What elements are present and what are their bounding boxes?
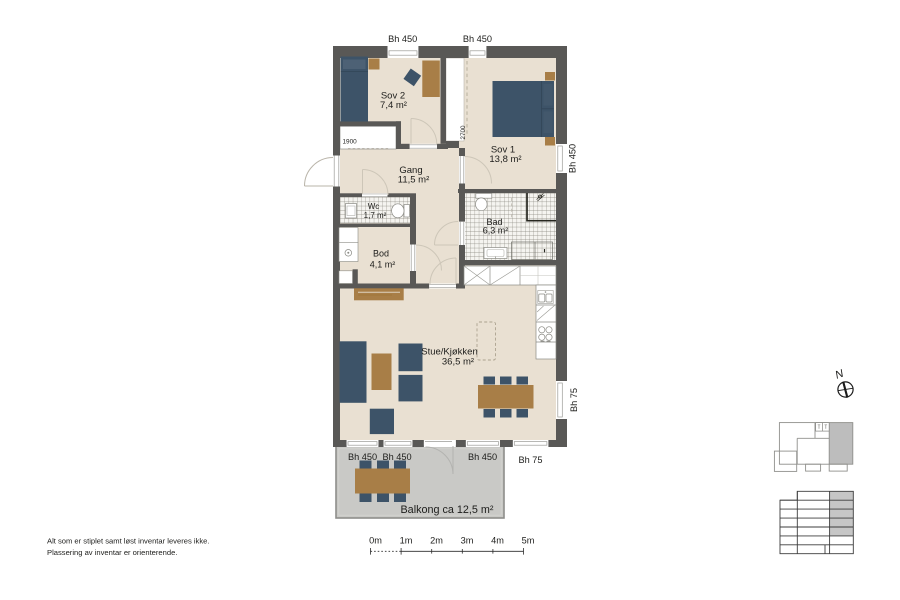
- svg-text:4,1 m²: 4,1 m²: [370, 260, 396, 270]
- svg-text:Balkong ca 12,5 m²: Balkong ca 12,5 m²: [400, 504, 493, 516]
- svg-text:2m: 2m: [430, 536, 443, 546]
- svg-text:4m: 4m: [491, 536, 504, 546]
- svg-text:1,7 m²: 1,7 m²: [364, 211, 387, 220]
- svg-text:13,8 m²: 13,8 m²: [489, 154, 521, 165]
- svg-text:7,4 m²: 7,4 m²: [380, 100, 407, 111]
- svg-text:Bh 75: Bh 75: [569, 388, 579, 412]
- svg-text:Bh 450: Bh 450: [382, 452, 411, 462]
- svg-text:6,3 m²: 6,3 m²: [483, 226, 509, 236]
- svg-text:1m: 1m: [400, 536, 413, 546]
- svg-text:Bh 450: Bh 450: [468, 452, 497, 462]
- svg-text:36,5 m²: 36,5 m²: [442, 357, 474, 368]
- svg-text:Alt som er stiplet samt løst i: Alt som er stiplet samt løst inventar le…: [47, 537, 209, 546]
- svg-text:1900: 1900: [343, 139, 358, 146]
- svg-text:Plassering av inventar er orie: Plassering av inventar er orienterende.: [47, 548, 177, 557]
- svg-text:2700: 2700: [460, 125, 467, 140]
- svg-text:0m: 0m: [369, 536, 382, 546]
- svg-text:Bh 450: Bh 450: [568, 144, 578, 173]
- svg-text:11,5 m²: 11,5 m²: [398, 175, 430, 186]
- svg-text:Bh 75: Bh 75: [518, 455, 542, 465]
- svg-text:3m: 3m: [461, 536, 474, 546]
- svg-text:Wc: Wc: [368, 202, 380, 211]
- svg-text:Bod: Bod: [373, 249, 389, 259]
- svg-text:Bh 450: Bh 450: [463, 34, 492, 44]
- svg-text:Bh 450: Bh 450: [388, 34, 417, 44]
- svg-text:5m: 5m: [522, 536, 535, 546]
- svg-text:Bh 450: Bh 450: [348, 452, 377, 462]
